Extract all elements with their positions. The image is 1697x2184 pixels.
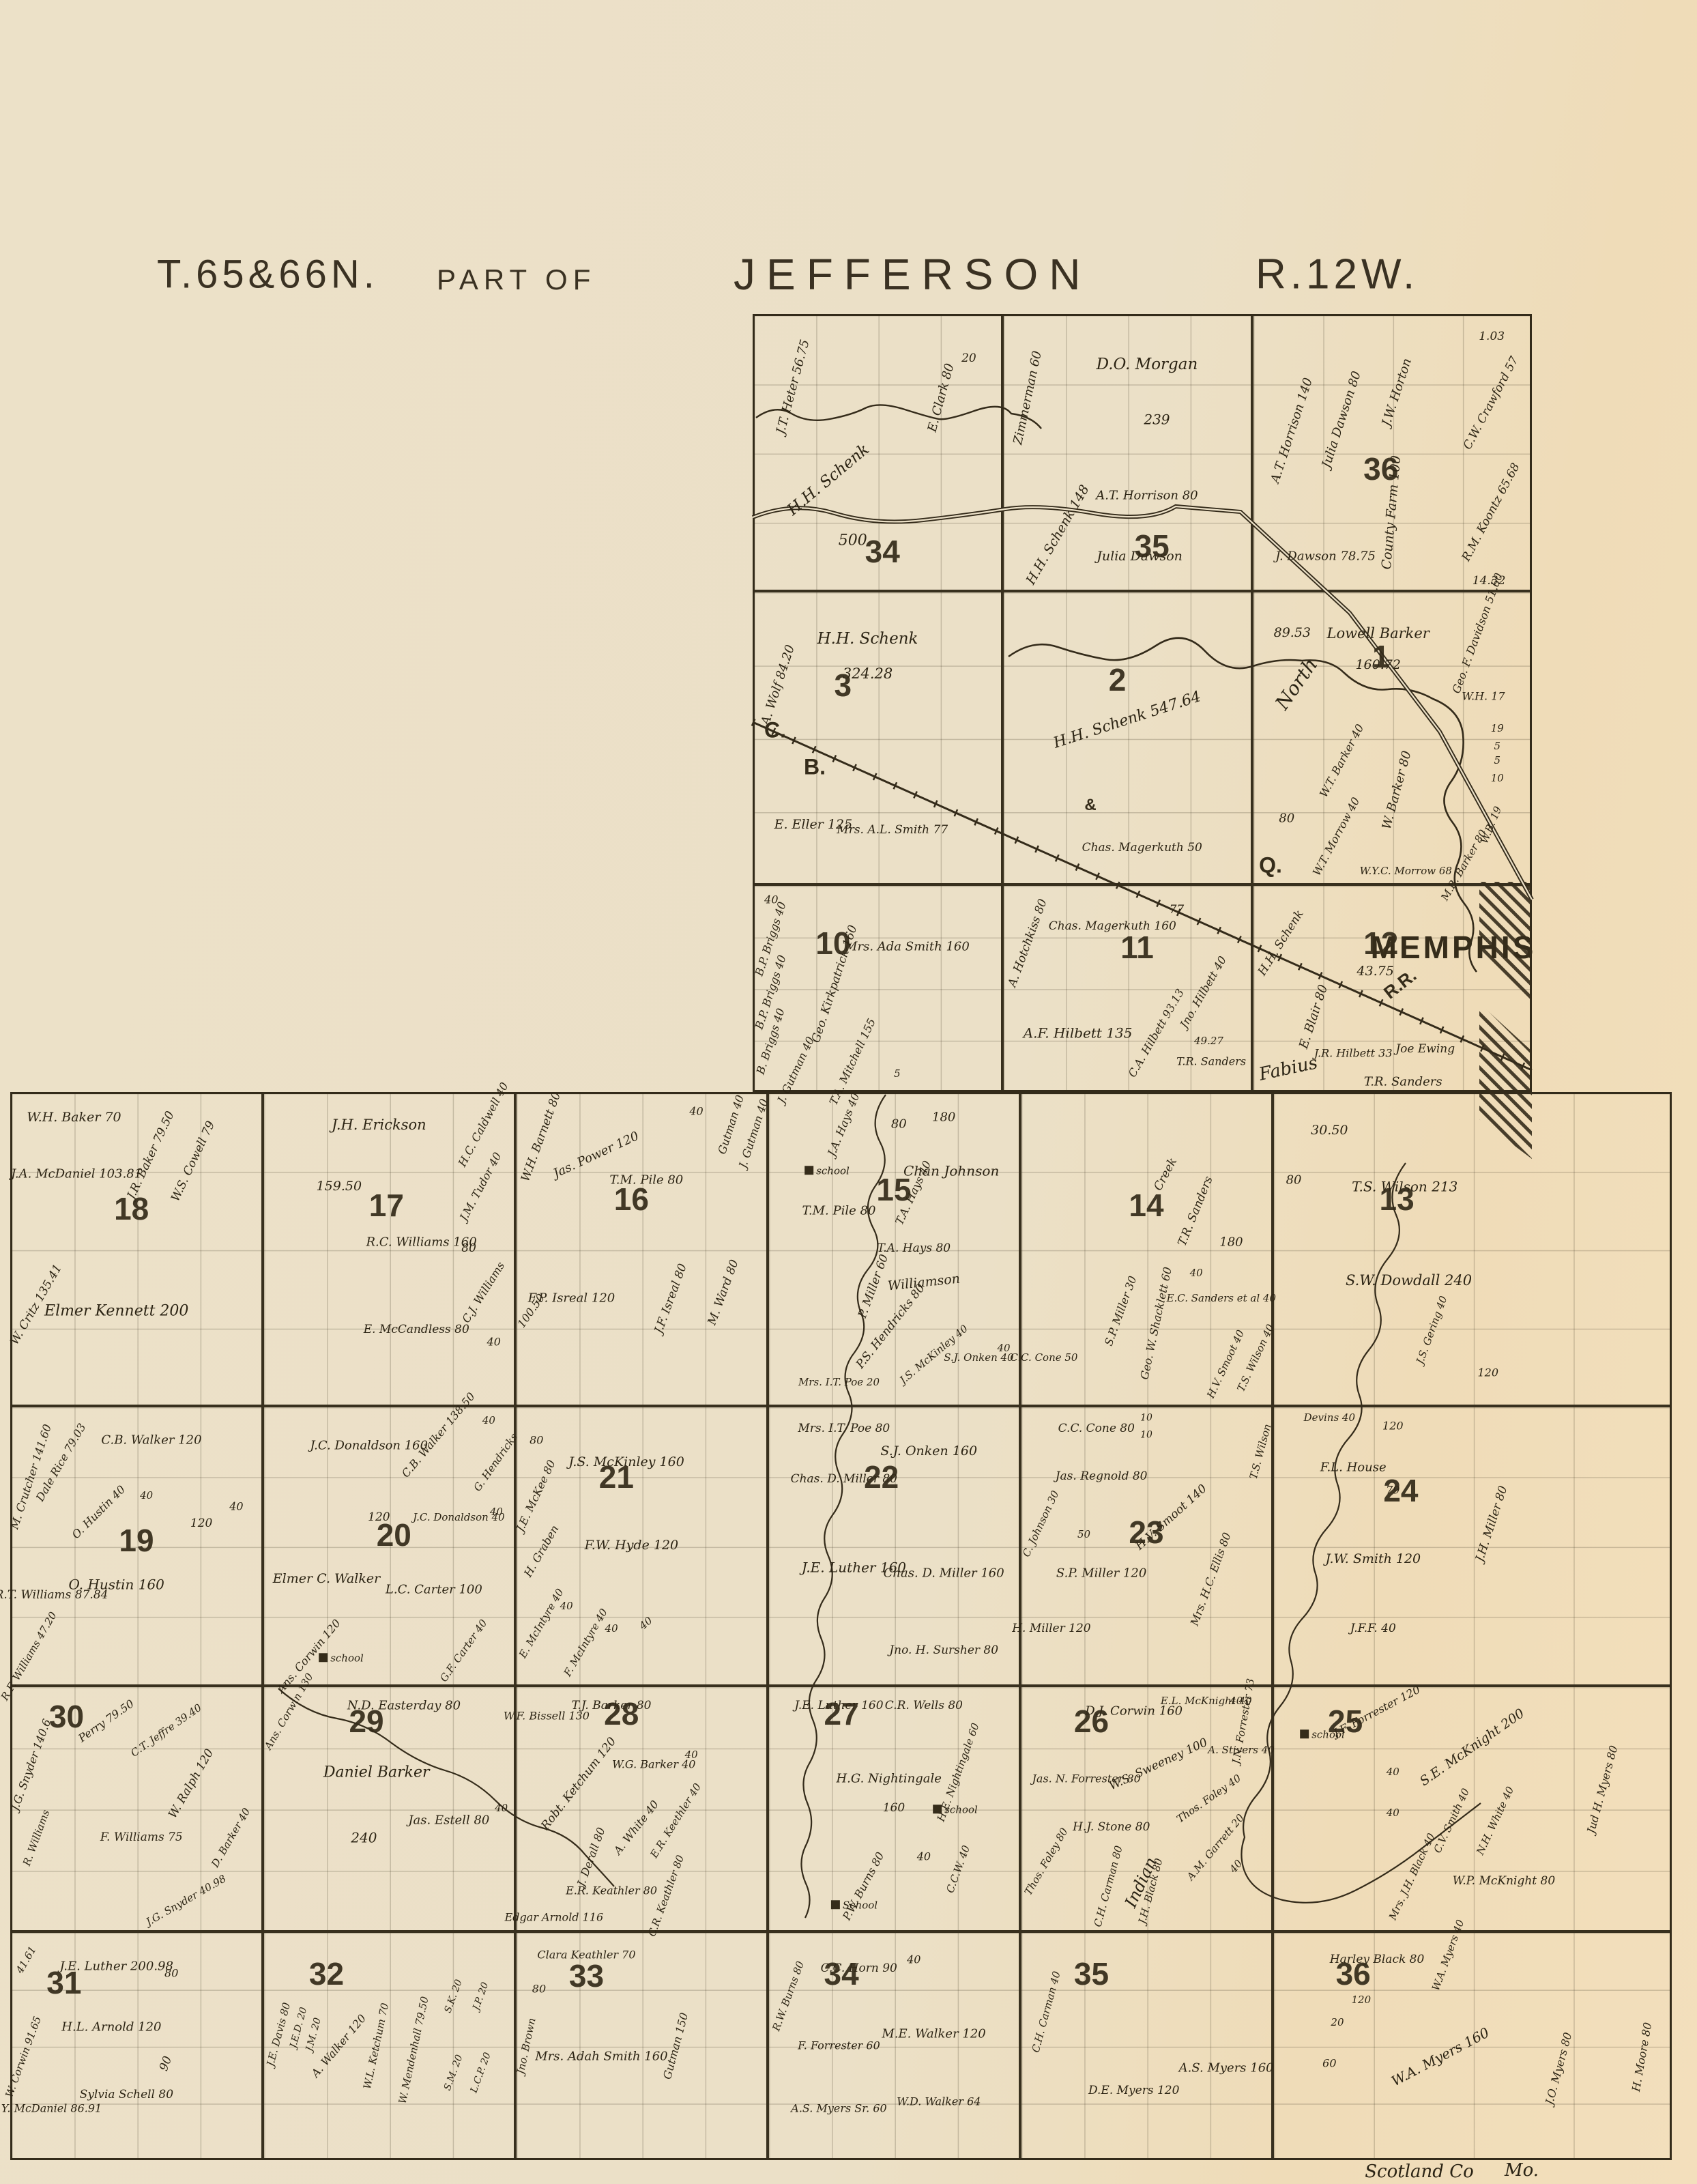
parcel-label: W.L. Ketchum 70	[362, 2002, 391, 2090]
parcel-label: 80	[530, 1435, 543, 1446]
parcel-label: Mrs. J.H. Black 40	[1388, 1832, 1438, 1922]
parcel-label: 180	[932, 1112, 955, 1125]
parcel-label: J.O. Myers 80	[1544, 2031, 1574, 2106]
parcel-label: P. Miller 60	[857, 1253, 891, 1320]
parcel-label: 40	[487, 1336, 501, 1348]
section-35: 35Zimmerman 60H.H. Schenk 148D.O. Morgan…	[1002, 314, 1252, 591]
title-part-of: PART OF	[437, 263, 596, 296]
parcel-label: Julia Dawson 80	[1320, 370, 1364, 470]
parcel-label: F. Williams 75	[100, 1832, 183, 1844]
parcel-label: W. Corwin 91.65	[5, 2015, 44, 2099]
parcel-label: J.H. Miller 80	[1474, 1484, 1510, 1563]
parcel-label: Jud H. Myers 80	[1586, 1744, 1620, 1834]
parcel-label: W.H. 17	[1462, 691, 1505, 703]
section-number-27: 27	[824, 1695, 859, 1732]
section-number-2: 2	[1109, 661, 1127, 698]
school-marker: school	[1300, 1727, 1345, 1740]
parcel-label: A. Stivers 40	[1208, 1745, 1275, 1756]
section-number-34-south: 34	[824, 1955, 859, 1992]
parcel-label: A. Hotchkiss 80	[1007, 897, 1050, 989]
plat-map-page: { "title":{"township":"T.65&66N.","part_…	[0, 0, 1697, 2184]
section-number-11: 11	[1120, 929, 1154, 966]
section-number-24: 24	[1383, 1472, 1418, 1509]
parcel-label: S.P. Miller 120	[1056, 1567, 1146, 1580]
school-marker: school	[933, 1802, 978, 1815]
parcel-label: L.C.P. 20	[469, 2052, 493, 2095]
parcel-label: W. Ralph 120	[166, 1748, 216, 1821]
section-2: 2H.H. Schenk 547.64Chas. Magerkuth 50	[1002, 591, 1252, 885]
map-label-: &	[1084, 796, 1096, 815]
section-number-15: 15	[876, 1171, 911, 1208]
section-number-10: 10	[815, 925, 850, 962]
parcel-label: T.M. Pile 80	[802, 1205, 876, 1218]
parcel-label: H.H. Schenk 547.64	[1051, 689, 1203, 752]
parcel-label: F. Forrester 60	[798, 2040, 880, 2052]
parcel-label: Devins 40	[1304, 1413, 1355, 1424]
section-number-14: 14	[1129, 1187, 1163, 1224]
parcel-label: H.G. Nightingale	[836, 1773, 941, 1786]
parcel-label: 80	[532, 1983, 546, 1995]
parcel-label: 40	[605, 1624, 618, 1635]
section-number-29: 29	[349, 1703, 383, 1740]
parcel-label: H. Miller 120	[1012, 1623, 1090, 1635]
parcel-label: S.M. 20	[443, 2054, 465, 2092]
section-number-18: 18	[114, 1190, 149, 1227]
parcel-label: 40	[1228, 1858, 1245, 1876]
parcel-label: C.C. Cone 50	[1010, 1353, 1077, 1364]
parcel-label: 40	[490, 1507, 503, 1518]
section-1: 189.53Lowell Barker160.72Geo. F. Davidso…	[1252, 591, 1532, 885]
school-icon	[933, 1805, 942, 1813]
map-label-c: C.	[764, 718, 786, 743]
parcel-label: Mrs. H.C. Ellis 80	[1189, 1531, 1234, 1627]
parcel-label: J.A. McDaniel 103.81	[11, 1168, 142, 1181]
section-number-36: 36	[1363, 450, 1398, 487]
parcel-label: R.M. Koontz 65.68	[1461, 462, 1523, 564]
parcel-label: C.J. Williams	[461, 1260, 507, 1325]
section-10: 1040B.P. Briggs 40B.P. Briggs 40B. Brigg…	[753, 885, 1002, 1092]
parcel-label: R.C. Williams 160	[366, 1236, 476, 1249]
school-label: school	[1311, 1728, 1345, 1740]
footer-state: Mo.	[1505, 2160, 1539, 2181]
parcel-label: J. Dawson 78.75	[1275, 550, 1376, 563]
parcel-label: 40	[917, 1852, 931, 1863]
parcel-label: S.W. Dowdall 240	[1346, 1273, 1472, 1288]
parcel-label: A.T. Horrison 80	[1096, 490, 1198, 503]
parcel-label: 120	[1477, 1368, 1498, 1379]
parcel-label: Perry 79.50	[76, 1698, 136, 1744]
section-number-3: 3	[835, 667, 852, 704]
parcel-label: C.W. Crawford 57	[1462, 355, 1522, 452]
parcel-label: 239	[1144, 412, 1170, 427]
parcel-label: 40	[638, 1615, 655, 1632]
school-marker: school	[804, 1163, 850, 1177]
parcel-label: C.R. Wells 80	[885, 1701, 963, 1713]
parcel-label: Gutman 150	[662, 2011, 691, 2080]
parcel-label: 120	[1382, 1421, 1404, 1433]
parcel-label: 43.75	[1357, 965, 1393, 979]
section-number-21: 21	[599, 1459, 634, 1495]
map-label-b: B.	[804, 755, 826, 780]
school-icon	[1300, 1729, 1309, 1738]
parcel-label: 41.61	[14, 1944, 38, 1975]
parcel-label: A.F. Hilbett 135	[1024, 1026, 1133, 1041]
parcel-label: E. McIntyre 40	[517, 1587, 566, 1660]
parcel-label: 50	[1077, 1529, 1090, 1540]
parcel-label: D.O. Morgan	[1097, 356, 1198, 373]
section-25: 25J.F. Forrester 120S.E. McKnight 200404…	[1273, 1686, 1672, 1931]
parcel-label: A.T. Horrison 140	[1269, 376, 1316, 485]
parcel-label: D.E. Myers 120	[1088, 2085, 1179, 2097]
parcel-label: J.S. Gering 40	[1415, 1295, 1450, 1366]
parcel-label: F.L. House	[1320, 1462, 1387, 1475]
parcel-label: E. McCandless 80	[364, 1324, 469, 1336]
parcel-label: Mrs. Adah Smith 160	[535, 2051, 667, 2064]
parcel-label: S.J. Onken 160	[880, 1445, 977, 1459]
parcel-label: C.C.W. 40	[945, 1844, 972, 1895]
parcel-label: W.T. Barker 40	[1318, 723, 1366, 799]
parcel-label: J.C. Donaldson 160	[310, 1439, 428, 1452]
parcel-label: P.W. Burns 80	[841, 1850, 887, 1922]
title-township: T.65&66N.	[157, 252, 379, 298]
section-26: 26D.J. Corwin 160E.L. McKnight 4040J.N. …	[1020, 1686, 1273, 1931]
parcel-label: Mrs. I.T. Poe 80	[798, 1424, 890, 1436]
school-marker: school	[319, 1650, 364, 1664]
parcel-label: 40	[1387, 1808, 1399, 1819]
section-13: 1330.5080T.S. Wilson 213J.S. Gering 40S.…	[1273, 1092, 1672, 1406]
parcel-label: H.H. Schenk 148	[1024, 483, 1092, 586]
parcel-label: Jas. N. Forrester 80	[1032, 1774, 1141, 1785]
parcel-label: F.P. Isreal 120	[528, 1293, 615, 1306]
section-19: 19M. Crutcher 141.60Dale Rice 79.03C.B. …	[10, 1406, 263, 1686]
parcel-label: M.E. Walker 120	[882, 2028, 985, 2041]
parcel-label: J. Derall 80	[575, 1826, 607, 1888]
parcel-label: 20	[961, 353, 976, 365]
parcel-label: E. Blair 80	[1298, 983, 1331, 1050]
parcel-label: 40	[1190, 1269, 1203, 1280]
parcel-label: J.R. Hilbett 33	[1314, 1048, 1393, 1060]
parcel-label: C.V. Smith 40	[1433, 1787, 1473, 1854]
parcel-label: 80	[164, 1968, 178, 1979]
section-number-13: 13	[1380, 1181, 1415, 1218]
parcel-label: 90	[158, 2055, 175, 2073]
parcel-label: Jas. Regnold 80	[1056, 1471, 1148, 1483]
parcel-label: J.P. 20	[472, 1981, 491, 2011]
parcel-label: 19	[1491, 723, 1504, 734]
parcel-label: 80	[1279, 813, 1294, 826]
parcel-label: 80	[1286, 1174, 1302, 1187]
parcel-label: F.W. Hyde 120	[585, 1539, 679, 1553]
parcel-label: J.E. McKee 80	[515, 1459, 558, 1534]
parcel-label: G.F. Carter 40	[439, 1618, 489, 1684]
parcel-label: H. Graben	[522, 1523, 561, 1579]
parcel-label: T.R. Sanders	[1177, 1175, 1216, 1248]
section-number-17: 17	[369, 1187, 404, 1224]
parcel-label: H.H. Schenk	[1256, 908, 1306, 978]
parcel-label: Jno. H. Sursher 80	[889, 1645, 998, 1657]
parcel-label: C.C. Cone 80	[1058, 1424, 1135, 1436]
parcel-label: W.G. Barker 40	[612, 1759, 695, 1771]
section-23: 23C.C. Cone 801010Jas. Regnold 80C. John…	[1020, 1406, 1273, 1686]
parcel-label: A.S. Myers 160	[1179, 2062, 1274, 2075]
section-29: 29Ans. Corwin 130N.D. Easterday 80Daniel…	[263, 1686, 515, 1931]
school-label: School	[843, 1899, 877, 1911]
parcel-label: 20	[1331, 2018, 1344, 2029]
section-36: 36A.T. Horrison 140Julia Dawson 80J.W. H…	[1252, 314, 1532, 591]
parcel-label: Joe Ewing	[1395, 1044, 1455, 1056]
parcel-label: 40	[140, 1491, 153, 1501]
parcel-label: Thos. Foley 80	[1023, 1827, 1070, 1898]
parcel-label: Chas. Magerkuth 50	[1082, 842, 1202, 854]
parcel-label: W.P. McKnight 80	[1453, 1876, 1555, 1888]
parcel-label: R.T. Williams 87.84	[0, 1590, 108, 1602]
parcel-label: H.H. Schenk	[817, 631, 918, 647]
parcel-label: R. Williams	[21, 1809, 51, 1867]
section-15: 15J.A. Hays 4080180Chan JohnsonT.M. Pile…	[768, 1092, 1020, 1406]
parcel-label: Mrs. A.L. Smith 77	[837, 824, 948, 837]
parcel-label: J.G. Snyder 40.98	[145, 1873, 229, 1928]
parcel-label: J.F. Isreal 80	[653, 1263, 689, 1336]
parcel-label: W.A. Myers 160	[1389, 2026, 1492, 2089]
parcel-label: Zimmerman 60	[1012, 349, 1045, 446]
parcel-label: 40	[229, 1501, 243, 1513]
section-number-23: 23	[1129, 1514, 1163, 1551]
section-27: 27J.E. Luther 160C.R. Wells 80H.G. Night…	[768, 1686, 1020, 1931]
section-number-1: 1	[1372, 638, 1390, 675]
section-24: 24Devins 40120F.L. House79J.W. Smith 120…	[1273, 1406, 1672, 1686]
school-label: school	[330, 1652, 364, 1664]
parcel-label: H.L. Arnold 120	[61, 2022, 161, 2035]
section-17: 17J.H. Erickson159.50R.C. Williams 160E.…	[263, 1092, 515, 1406]
school-label: school	[816, 1164, 850, 1177]
parcel-label: 159.50	[317, 1180, 362, 1194]
section-number-35-south: 35	[1074, 1955, 1109, 1992]
section-number-16: 16	[614, 1181, 649, 1218]
parcel-label: 80	[891, 1118, 907, 1131]
section-36-south: 36Harley Black 80W.A. Myers 401202060W.A…	[1273, 1931, 1672, 2160]
section-22: 22Mrs. I.T. Poe 80Chas. D. Miller 80S.J.…	[768, 1406, 1020, 1686]
parcel-label: H. Moore 80	[1631, 2022, 1654, 2093]
section-33: 33Jno. Brown80Clara Keathler 70Mrs. Adah…	[515, 1931, 768, 2160]
parcel-label: C.T. Jeffre 39.40	[129, 1703, 203, 1759]
parcel-label: T.R. Sanders	[1364, 1076, 1442, 1089]
school-icon	[804, 1166, 813, 1175]
section-number-26: 26	[1074, 1703, 1109, 1740]
footer-county: Scotland Co	[1365, 2161, 1474, 2182]
parcel-label: J.M. 20	[305, 2017, 323, 2052]
parcel-label: J.W. Horton	[1380, 357, 1415, 428]
section-31: 3141.61J.E. Luther 200.9880H.L. Arnold 1…	[10, 1931, 263, 2160]
parcel-label: T.A. Hays 80	[877, 1243, 951, 1255]
parcel-label: Chas. D. Miller 160	[884, 1567, 1004, 1580]
parcel-label: Elmer C. Walker	[273, 1572, 380, 1586]
section-number-22: 22	[864, 1459, 899, 1495]
parcel-label: 10	[1491, 773, 1504, 784]
section-number-34: 34	[865, 533, 900, 570]
parcel-label: 40	[685, 1750, 698, 1761]
parcel-label: 77	[1170, 904, 1185, 917]
parcel-label: Robt. Ketchum 120	[539, 1736, 618, 1833]
school-icon	[319, 1653, 328, 1662]
parcel-label: Daniel Barker	[323, 1764, 430, 1780]
section-28: 28W.F. Bissell 130T.J. Barker 80Robt. Ke…	[515, 1686, 768, 1931]
school-icon	[831, 1900, 840, 1909]
section-number-19: 19	[119, 1522, 154, 1559]
section-11: 11A. Hotchkiss 80Chas. Magerkuth 16077A.…	[1002, 885, 1252, 1092]
parcel-label: H.H. Schenk	[784, 441, 872, 519]
section-18: 18W.H. Baker 70J.A. McDaniel 103.81J.R. …	[10, 1092, 263, 1406]
parcel-label: J.W. Smith 120	[1325, 1553, 1421, 1566]
parcel-label: J.H. Erickson	[332, 1117, 426, 1132]
parcel-label: J.F.F. 40	[1350, 1623, 1396, 1635]
section-number-33: 33	[569, 1957, 604, 1994]
parcel-label: E.R. Keathler 80	[566, 1886, 657, 1897]
school-marker: School	[831, 1897, 877, 1911]
parcel-label: G. Hendricks	[472, 1432, 520, 1493]
parcel-label: R.W. Burns 80	[771, 1959, 807, 2032]
parcel-label: 49.27	[1194, 1036, 1223, 1047]
parcel-label: Geo. W. Shacklett 60	[1139, 1267, 1174, 1381]
parcel-label: 160	[883, 1802, 905, 1815]
parcel-label: Elmer Kennett 200	[44, 1304, 188, 1319]
parcel-label: E.C. Sanders et al 40	[1167, 1293, 1276, 1304]
parcel-label: 40	[997, 1343, 1010, 1354]
parcel-label: H.J. Stone 80	[1073, 1822, 1150, 1835]
parcel-label: A.S. Myers Sr. 60	[791, 2103, 886, 2115]
section-number-31: 31	[46, 1964, 81, 2001]
parcel-label: W.D. Walker 64	[897, 2097, 981, 2108]
parcel-label: Jno. Brown	[515, 2017, 538, 2075]
parcel-label: Mrs. I.T. Poe 20	[798, 1377, 880, 1388]
section-14: 14C.C. Cone 50CreekT.R. Sanders180S.P. M…	[1020, 1092, 1273, 1406]
section-16: 16W.H. Barnett 80Jas. Power 12040Gutman …	[515, 1092, 768, 1406]
parcel-label: 5	[1494, 756, 1500, 766]
parcel-label: 80	[461, 1243, 476, 1255]
section-21: 2180J.E. McKee 80J.S. McKinley 160H. Gra…	[515, 1406, 768, 1686]
parcel-label: W.T. Morrow 40	[1311, 796, 1362, 878]
section-30: 30J.G. Snyder 140.6Perry 79.50C.T. Jeffr…	[10, 1686, 263, 1931]
parcel-label: W.Y.C. Morrow 68	[1360, 866, 1452, 877]
parcel-label: 60	[1322, 2058, 1336, 2070]
section-number-28: 28	[604, 1695, 639, 1732]
parcel-label: 500	[839, 532, 867, 548]
parcel-label: T.R. Sanders	[1176, 1057, 1246, 1068]
parcel-label: J.T. Heter 56.75	[774, 338, 812, 435]
parcel-label: 89.53	[1274, 627, 1311, 640]
section-number-36-south: 36	[1336, 1955, 1371, 1992]
parcel-label: S.K. 20	[444, 1978, 465, 2014]
parcel-label: E. Clark 80	[927, 362, 957, 433]
parcel-label: 30.50	[1311, 1124, 1348, 1138]
parcel-label: W. Barker 80	[1381, 749, 1415, 831]
section-number-20: 20	[377, 1517, 411, 1553]
section-32: 32J.E. Davis 80J.E.D. 20J.M. 20A. Walker…	[263, 1931, 515, 2160]
school-label: school	[944, 1803, 978, 1815]
parcel-label: Mrs. Ada Smith 160	[845, 941, 970, 954]
parcel-label: N.H. White 40	[1475, 1785, 1516, 1856]
parcel-label: 40	[1387, 1767, 1399, 1778]
parcel-label: M. Ward 80	[706, 1259, 741, 1327]
parcel-label: S.J. Onken 40	[944, 1353, 1013, 1364]
section-34: 34J.T. Heter 56.75H.H. Schenk500E. Clark…	[753, 314, 1002, 591]
title-name: JEFFERSON	[734, 249, 1091, 300]
parcel-label: F. McIntyre 40	[563, 1607, 610, 1678]
parcel-label: W. Mendenhall 79.50	[397, 1996, 431, 2105]
parcel-label: S.P. Miller 30	[1103, 1275, 1140, 1348]
parcel-label: J.E. Davis 80	[265, 2002, 293, 2068]
parcel-label: 40	[560, 1601, 573, 1612]
parcel-label: Chas. Magerkuth 160	[1049, 921, 1176, 933]
parcel-label: 120	[1351, 1995, 1371, 2006]
parcel-label: C.H. Carman 80	[1093, 1845, 1125, 1929]
title-range: R.12W.	[1256, 250, 1419, 299]
map-label-q: Q.	[1259, 853, 1282, 878]
parcel-label: C. Johnson 30	[1021, 1489, 1062, 1559]
parcel-label: C.B. Walker 120	[101, 1434, 201, 1447]
parcel-label: L.C. Carter 100	[386, 1584, 482, 1597]
parcel-label: D. Barker 40	[210, 1807, 252, 1869]
parcel-label: 240	[351, 1830, 377, 1845]
parcel-label: 5	[1494, 741, 1500, 752]
section-34-south: 34C.C. Horn 9040R.W. Burns 80F. Forreste…	[768, 1931, 1020, 2160]
parcel-label: Edgar Arnold 116	[505, 1912, 604, 1924]
parcel-label: 120	[190, 1518, 212, 1530]
parcel-label: J.G. Snyder 140.6	[10, 1718, 53, 1812]
parcel-label: Sylvia Schell 80	[80, 2089, 173, 2101]
parcel-label: 10	[1140, 1430, 1152, 1440]
parcel-label: 40	[689, 1106, 703, 1118]
parcel-label: T.S. Wilson	[1249, 1423, 1274, 1480]
parcel-label: E.R. Keethler 40	[649, 1781, 704, 1860]
section-number-35: 35	[1135, 528, 1170, 564]
parcel-label: J.R. Baker 79.50	[126, 1110, 177, 1201]
section-number-30: 30	[49, 1698, 84, 1735]
parcel-label: 1.03	[1479, 331, 1505, 343]
section-20: 20J.C. Donaldson 160C.B. Walker 138.5040…	[263, 1406, 515, 1686]
parcel-label: 40	[907, 1954, 920, 1966]
section-number-32: 32	[309, 1955, 344, 1992]
section-35-south: 35C.H. Carman 40D.E. Myers 120A.S. Myers…	[1020, 1931, 1273, 2160]
parcel-label: 5	[894, 1069, 901, 1080]
map-label-memphis: MEMPHIS	[1371, 929, 1537, 966]
parcel-label: W.H. Baker 70	[27, 1112, 121, 1125]
parcel-label: A. Wolf 84.20	[759, 644, 798, 727]
parcel-label: 40	[495, 1803, 508, 1814]
parcel-label: 10	[1140, 1413, 1152, 1424]
parcel-label: Y. McDaniel 86.91	[1, 2103, 102, 2115]
parcel-label: Jas. Estell 80	[408, 1814, 489, 1827]
parcel-label: 40	[482, 1416, 495, 1426]
parcel-label: W.S. Cowell 79	[170, 1120, 218, 1204]
section-3: 3A. Wolf 84.20H.H. Schenk324.28E. Eller …	[753, 591, 1002, 885]
parcel-label: 180	[1219, 1236, 1243, 1249]
parcel-label: C.H. Carman 40	[1030, 1970, 1062, 2054]
parcel-label: S.E. McKnight 200	[1418, 1707, 1527, 1789]
